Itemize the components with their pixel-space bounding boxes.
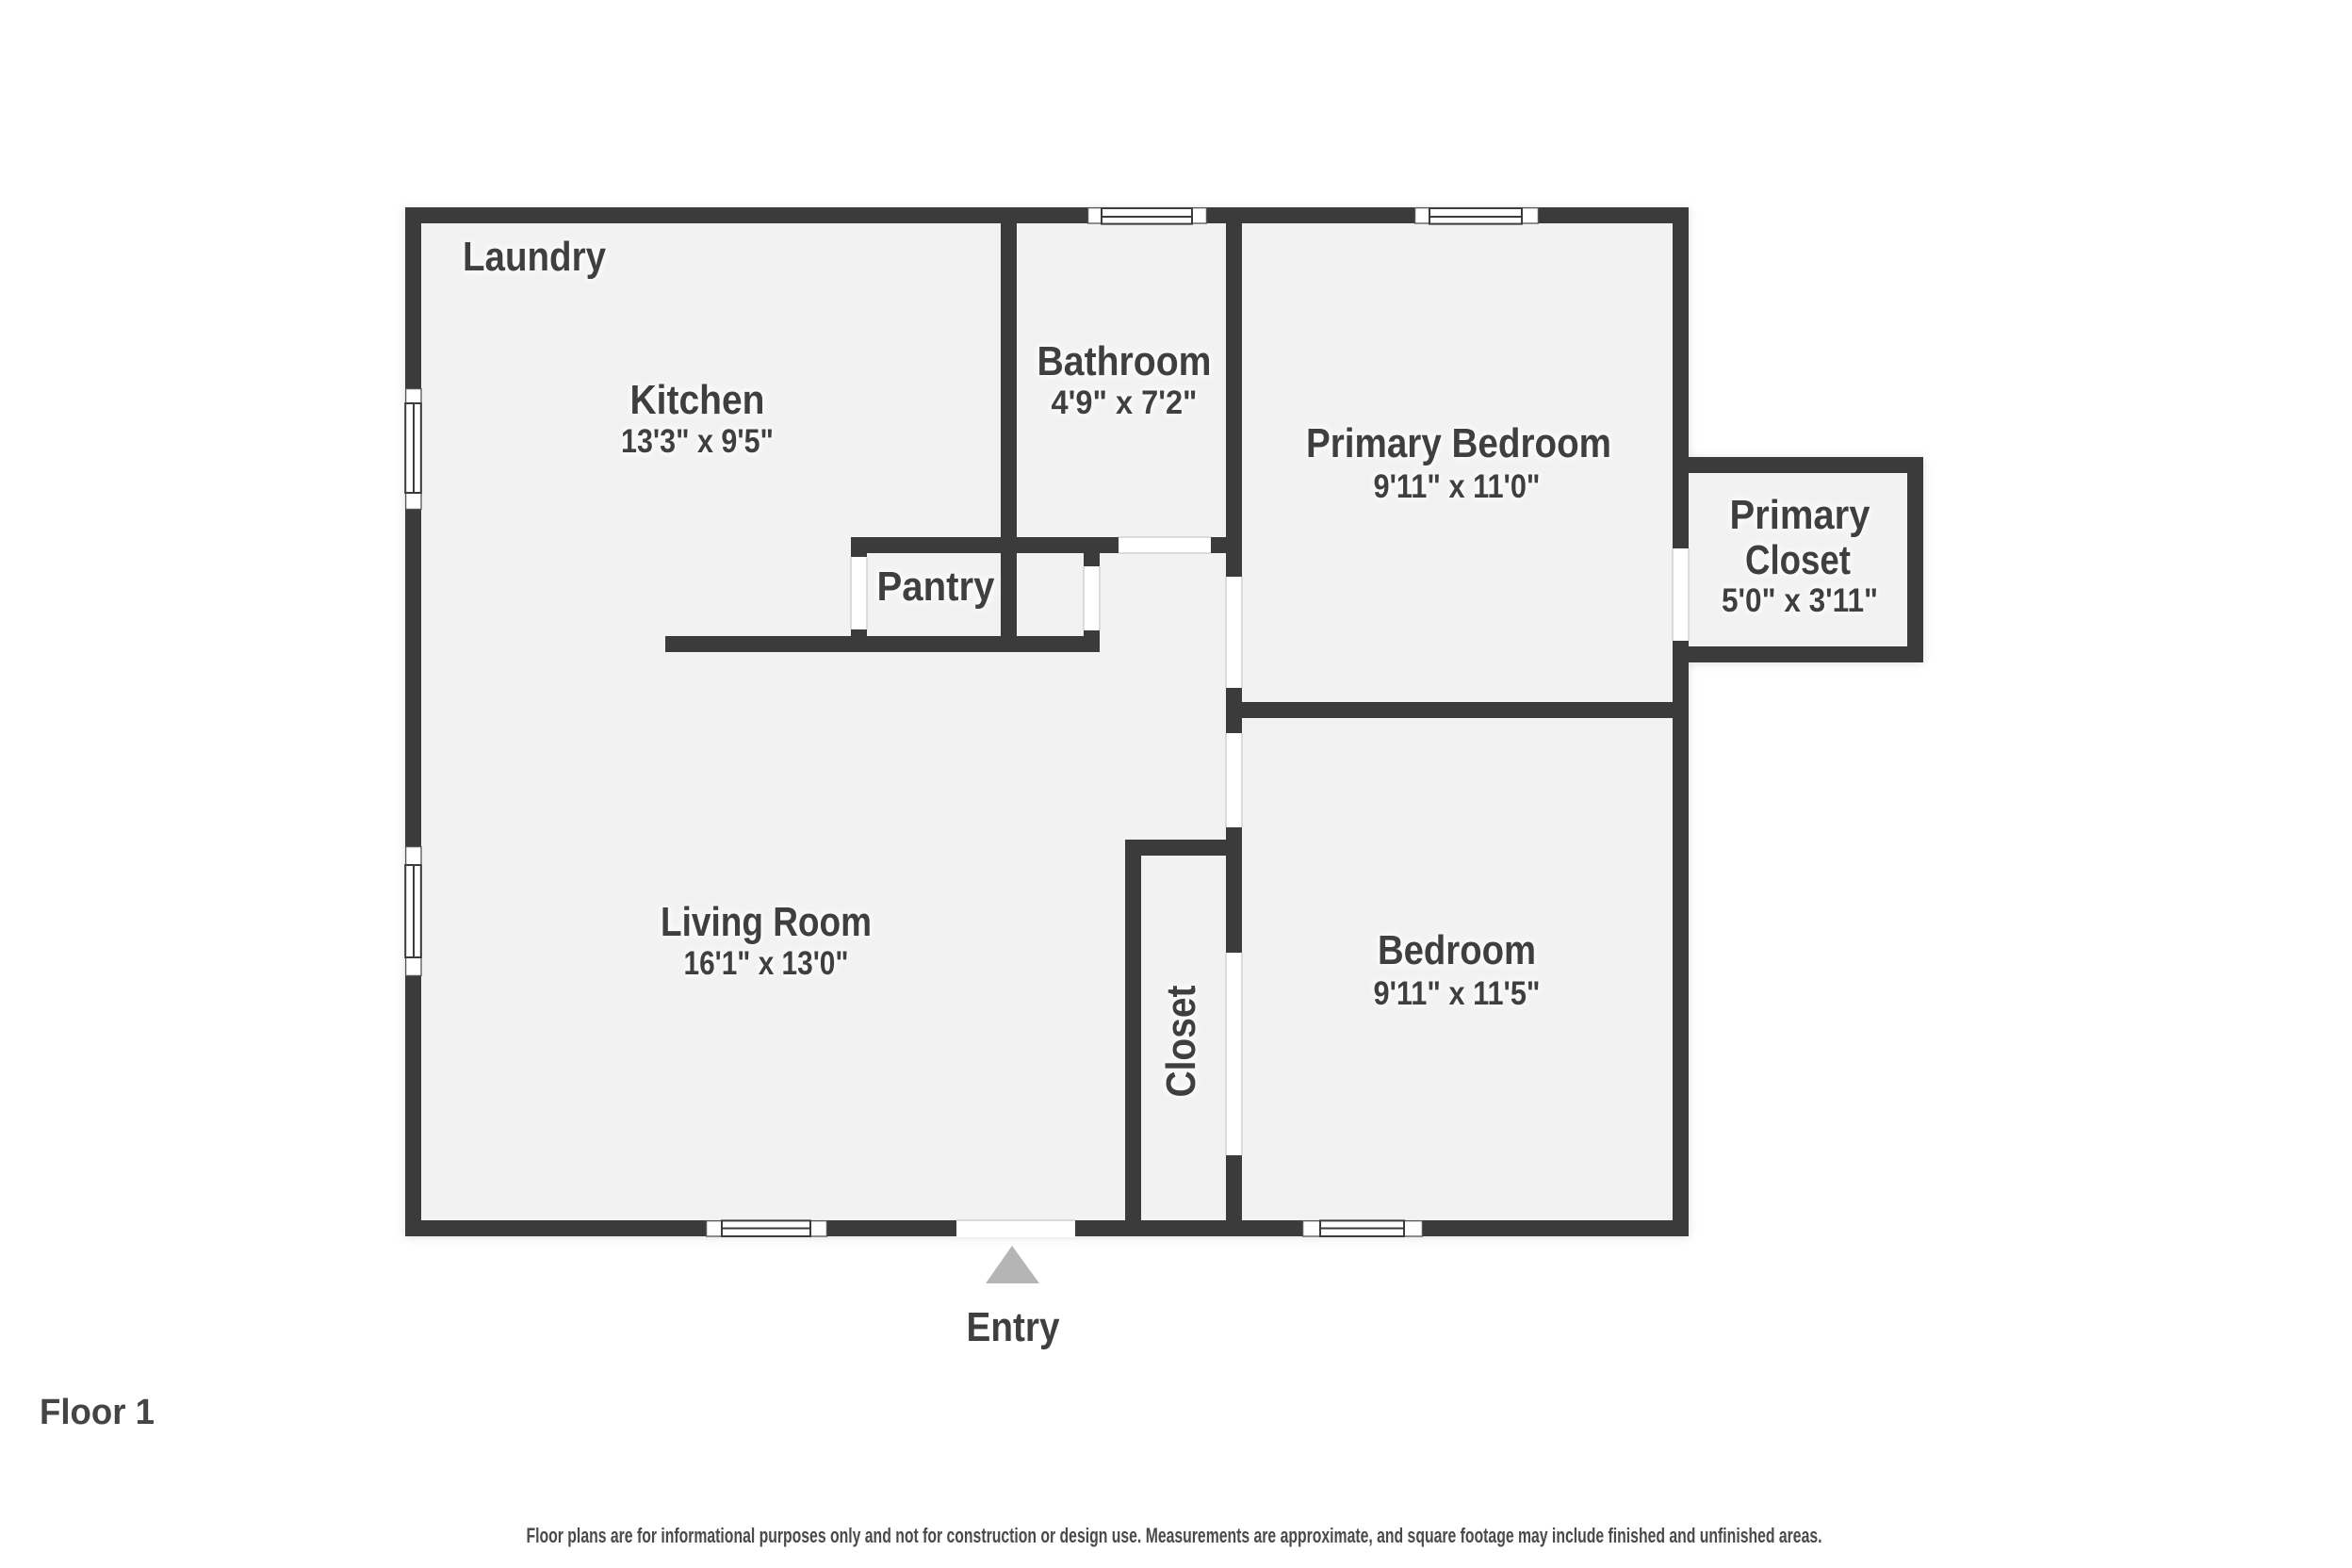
svg-text:13'3" x 9'5": 13'3" x 9'5"	[621, 423, 774, 460]
svg-text:9'11" x 11'5": 9'11" x 11'5"	[1374, 975, 1541, 1012]
svg-text:Floor plans are for informatio: Floor plans are for informational purpos…	[527, 1524, 1822, 1547]
svg-text:Closet: Closet	[1745, 537, 1851, 583]
svg-text:Bathroom: Bathroom	[1037, 338, 1212, 384]
svg-text:Bedroom: Bedroom	[1378, 927, 1536, 973]
svg-text:Living Room: Living Room	[661, 899, 872, 945]
svg-text:4'9" x 7'2": 4'9" x 7'2"	[1052, 384, 1198, 421]
svg-text:9'11" x 11'0": 9'11" x 11'0"	[1374, 468, 1541, 505]
svg-text:Entry: Entry	[967, 1304, 1060, 1350]
svg-text:Pantry: Pantry	[877, 563, 995, 610]
svg-text:5'0" x 3'11": 5'0" x 3'11"	[1722, 582, 1878, 619]
svg-text:Primary: Primary	[1730, 492, 1870, 538]
svg-text:Closet: Closet	[1158, 985, 1204, 1097]
svg-text:Kitchen: Kitchen	[630, 377, 765, 423]
svg-text:Floor 1: Floor 1	[40, 1393, 155, 1432]
svg-text:Laundry: Laundry	[463, 234, 606, 280]
svg-text:16'1" x 13'0": 16'1" x 13'0"	[684, 945, 849, 982]
svg-text:Primary Bedroom: Primary Bedroom	[1306, 420, 1611, 466]
